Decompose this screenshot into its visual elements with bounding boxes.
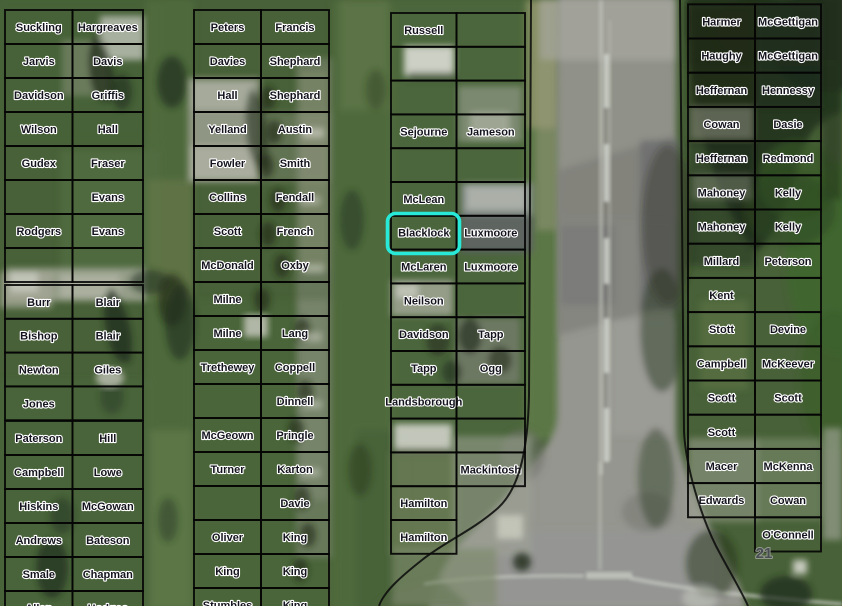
svg-text:Burr: Burr <box>27 297 51 309</box>
svg-text:Hamilton: Hamilton <box>400 498 447 510</box>
svg-text:Lowe: Lowe <box>94 467 122 479</box>
svg-text:Milne: Milne <box>213 328 241 340</box>
svg-text:Cowan: Cowan <box>703 119 739 131</box>
svg-text:McLaren: McLaren <box>401 262 447 274</box>
svg-text:Kelly: Kelly <box>775 222 802 234</box>
svg-text:Smith: Smith <box>280 158 311 170</box>
svg-text:21: 21 <box>756 545 773 562</box>
svg-text:Dinnell: Dinnell <box>277 396 314 408</box>
svg-text:Jarvis: Jarvis <box>23 56 55 68</box>
svg-text:Luxmoore: Luxmoore <box>464 228 517 240</box>
svg-text:King: King <box>215 566 239 578</box>
svg-text:Newton: Newton <box>19 365 59 377</box>
svg-text:Hamilton: Hamilton <box>400 532 447 544</box>
svg-text:Redmond: Redmond <box>763 153 814 165</box>
svg-text:McKenna: McKenna <box>764 461 814 473</box>
svg-text:Neilson: Neilson <box>404 295 444 307</box>
svg-text:Mackintosh: Mackintosh <box>461 464 522 476</box>
svg-text:Jones: Jones <box>23 398 55 410</box>
svg-text:Hargreaves: Hargreaves <box>78 22 138 34</box>
svg-text:Campbell: Campbell <box>697 358 747 370</box>
svg-text:Fraser: Fraser <box>91 158 125 170</box>
svg-text:Blair: Blair <box>96 331 121 343</box>
svg-text:Chapman: Chapman <box>83 569 133 581</box>
svg-text:Peters: Peters <box>211 22 245 34</box>
svg-text:Heffernan: Heffernan <box>696 153 748 165</box>
svg-text:Davidson: Davidson <box>399 329 449 341</box>
svg-text:Blacklock: Blacklock <box>398 228 450 240</box>
svg-text:Bateson: Bateson <box>86 535 130 547</box>
svg-text:Milne: Milne <box>213 294 241 306</box>
svg-text:Tapp: Tapp <box>411 363 437 375</box>
svg-text:Giles: Giles <box>94 365 121 377</box>
svg-text:Russell: Russell <box>404 25 443 37</box>
svg-text:Sejourne: Sejourne <box>400 126 447 138</box>
svg-text:Blair: Blair <box>96 297 121 309</box>
svg-text:McLean: McLean <box>403 194 444 206</box>
svg-text:Macer: Macer <box>706 461 739 473</box>
svg-text:Shephard: Shephard <box>270 56 321 68</box>
svg-text:McGowan: McGowan <box>82 501 134 513</box>
svg-text:Davis: Davis <box>93 56 122 68</box>
svg-text:Collins: Collins <box>209 192 246 204</box>
svg-text:McGeown: McGeown <box>202 430 254 442</box>
svg-text:Griffis: Griffis <box>92 90 124 102</box>
svg-text:Tapp: Tapp <box>478 329 504 341</box>
svg-text:Wilson: Wilson <box>21 124 57 136</box>
svg-text:Rodgers: Rodgers <box>16 226 61 238</box>
svg-text:Oxby: Oxby <box>281 260 309 272</box>
svg-text:Francis: Francis <box>275 22 314 34</box>
svg-text:Mahoney: Mahoney <box>698 187 747 199</box>
svg-text:Suckling: Suckling <box>16 22 62 34</box>
svg-text:Davie: Davie <box>280 498 309 510</box>
svg-text:Stott: Stott <box>709 324 734 336</box>
svg-text:McKeever: McKeever <box>762 358 815 370</box>
svg-text:Stumbles: Stumbles <box>203 600 253 606</box>
svg-text:Millard: Millard <box>704 256 739 268</box>
svg-text:Ogg: Ogg <box>480 363 502 375</box>
svg-text:Hall: Hall <box>217 90 237 102</box>
svg-text:Scott: Scott <box>708 427 736 439</box>
svg-text:McGettigan: McGettigan <box>758 51 818 63</box>
svg-text:Haughy: Haughy <box>701 51 742 63</box>
svg-text:Cowan: Cowan <box>770 495 806 507</box>
svg-text:Paterson: Paterson <box>15 433 62 445</box>
svg-text:Landsborough: Landsborough <box>385 397 462 409</box>
svg-text:Pringle: Pringle <box>276 430 313 442</box>
svg-text:Scott: Scott <box>708 393 736 405</box>
svg-text:Davidson: Davidson <box>14 90 64 102</box>
svg-text:Scott: Scott <box>214 226 242 238</box>
svg-text:Davies: Davies <box>210 56 245 68</box>
svg-text:Heffernan: Heffernan <box>696 85 748 97</box>
svg-text:Lang: Lang <box>282 328 308 340</box>
svg-text:McGettigan: McGettigan <box>758 16 818 28</box>
svg-text:Evans: Evans <box>92 226 124 238</box>
svg-text:King: King <box>283 566 307 578</box>
svg-text:Peterson: Peterson <box>764 256 811 268</box>
svg-text:Devine: Devine <box>770 324 806 336</box>
svg-text:Hill: Hill <box>99 433 116 445</box>
svg-text:Hennessy: Hennessy <box>762 85 815 97</box>
svg-text:Smale: Smale <box>23 569 55 581</box>
svg-text:O'Connell: O'Connell <box>762 529 814 541</box>
svg-text:King: King <box>283 600 307 606</box>
svg-text:Fendall: Fendall <box>276 192 315 204</box>
svg-text:Scott: Scott <box>774 393 802 405</box>
svg-text:Bishop: Bishop <box>20 331 58 343</box>
svg-text:Harmer: Harmer <box>702 16 741 28</box>
svg-text:Oliver: Oliver <box>212 532 244 544</box>
svg-text:Hall: Hall <box>98 124 118 136</box>
svg-text:Dasie: Dasie <box>773 119 802 131</box>
svg-text:Coppell: Coppell <box>275 362 315 374</box>
svg-text:Karton: Karton <box>277 464 313 476</box>
svg-text:Turner: Turner <box>210 464 245 476</box>
svg-text:McDonald: McDonald <box>201 260 254 272</box>
svg-text:Shephard: Shephard <box>270 90 321 102</box>
svg-text:French: French <box>277 226 314 238</box>
svg-text:Kent: Kent <box>709 290 734 302</box>
svg-text:Andrews: Andrews <box>16 535 62 547</box>
svg-text:Mahoney: Mahoney <box>698 222 747 234</box>
svg-text:Kelly: Kelly <box>775 187 802 199</box>
svg-text:Fowler: Fowler <box>210 158 246 170</box>
svg-text:Edwards: Edwards <box>699 495 745 507</box>
svg-text:Gudex: Gudex <box>22 158 57 170</box>
svg-text:Yelland: Yelland <box>208 124 247 136</box>
svg-text:Luxmoore: Luxmoore <box>464 262 517 274</box>
svg-text:Jameson: Jameson <box>467 126 515 138</box>
svg-text:Campbell: Campbell <box>14 467 64 479</box>
svg-text:Austin: Austin <box>278 124 313 136</box>
svg-text:Trethewey: Trethewey <box>201 362 256 374</box>
svg-text:King: King <box>283 532 307 544</box>
svg-text:Evans: Evans <box>92 192 124 204</box>
svg-text:Hiskins: Hiskins <box>19 501 58 513</box>
